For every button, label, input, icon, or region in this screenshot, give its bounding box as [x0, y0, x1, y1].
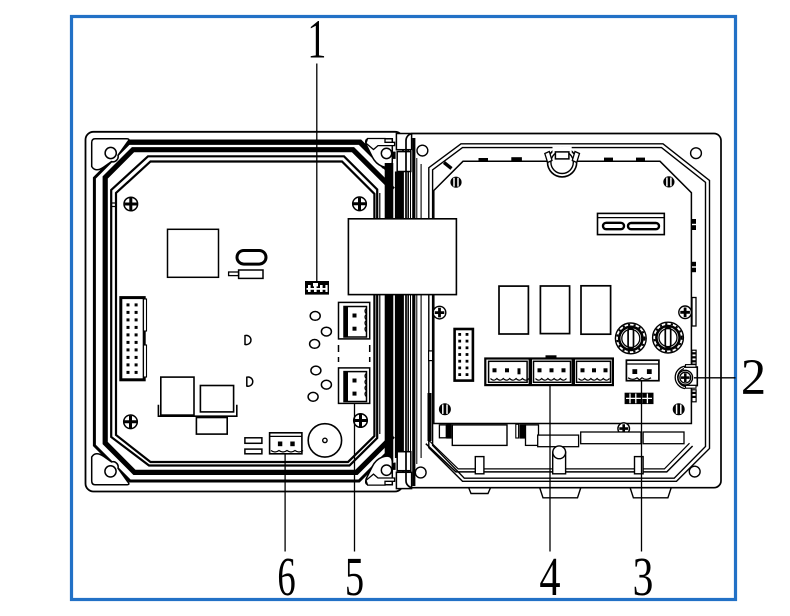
svg-text:6: 6: [277, 547, 295, 608]
svg-text:5: 5: [345, 547, 364, 607]
svg-text:4: 4: [539, 546, 560, 608]
svg-text:1: 1: [307, 10, 326, 71]
svg-text:2: 2: [741, 349, 766, 405]
svg-text:3: 3: [633, 546, 654, 607]
